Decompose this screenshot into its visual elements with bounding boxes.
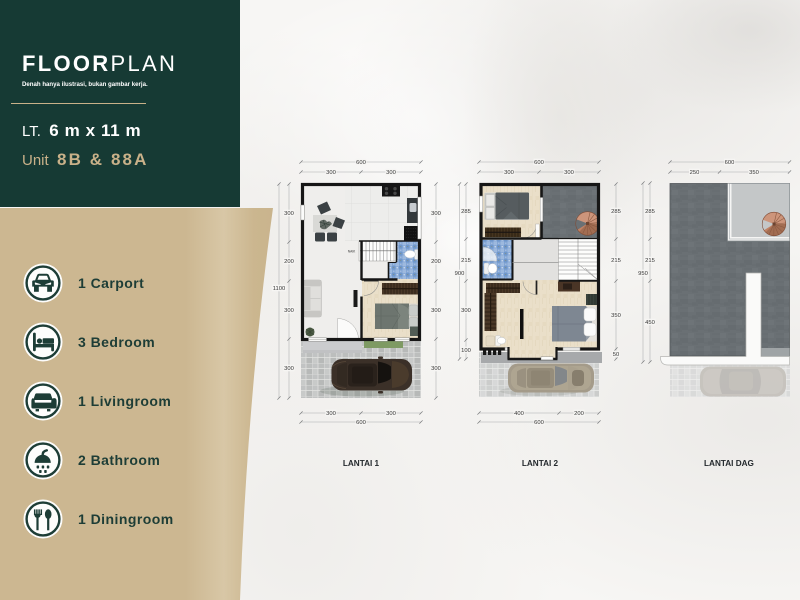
svg-text:600: 600 bbox=[356, 420, 366, 426]
svg-text:300: 300 bbox=[386, 411, 396, 417]
svg-text:600: 600 bbox=[725, 160, 735, 166]
svg-text:300: 300 bbox=[326, 170, 336, 176]
svg-text:300: 300 bbox=[284, 308, 294, 314]
svg-text:1100: 1100 bbox=[273, 286, 285, 292]
svg-text:300: 300 bbox=[284, 366, 294, 372]
svg-text:300: 300 bbox=[326, 411, 336, 417]
svg-text:300: 300 bbox=[386, 170, 396, 176]
svg-text:450: 450 bbox=[645, 320, 655, 326]
svg-text:300: 300 bbox=[431, 366, 441, 372]
svg-text:215: 215 bbox=[645, 258, 655, 264]
svg-text:250: 250 bbox=[690, 170, 700, 176]
svg-text:200: 200 bbox=[431, 259, 441, 265]
svg-text:285: 285 bbox=[461, 209, 471, 215]
svg-text:LANTAI 2: LANTAI 2 bbox=[522, 459, 559, 468]
svg-text:200: 200 bbox=[284, 259, 294, 265]
svg-text:350: 350 bbox=[749, 170, 759, 176]
svg-text:300: 300 bbox=[504, 170, 514, 176]
svg-text:LANTAI DAG: LANTAI DAG bbox=[704, 459, 754, 468]
svg-text:100: 100 bbox=[461, 348, 471, 354]
svg-text:285: 285 bbox=[645, 209, 655, 215]
svg-text:300: 300 bbox=[284, 211, 294, 217]
svg-text:NAIK: NAIK bbox=[348, 249, 356, 253]
svg-text:600: 600 bbox=[356, 160, 366, 166]
svg-text:600: 600 bbox=[534, 420, 544, 426]
svg-text:215: 215 bbox=[611, 258, 621, 264]
svg-text:900: 900 bbox=[455, 271, 465, 277]
svg-text:950: 950 bbox=[638, 271, 648, 277]
svg-text:200: 200 bbox=[574, 411, 584, 417]
svg-text:300: 300 bbox=[431, 308, 441, 314]
svg-text:300: 300 bbox=[461, 308, 471, 314]
svg-text:300: 300 bbox=[564, 170, 574, 176]
svg-text:LANTAI 1: LANTAI 1 bbox=[343, 459, 380, 468]
svg-text:600: 600 bbox=[534, 160, 544, 166]
svg-text:215: 215 bbox=[461, 258, 471, 264]
svg-text:300: 300 bbox=[431, 211, 441, 217]
svg-text:50: 50 bbox=[613, 352, 619, 358]
svg-text:285: 285 bbox=[611, 209, 621, 215]
svg-text:350: 350 bbox=[611, 313, 621, 319]
svg-text:400: 400 bbox=[514, 411, 524, 417]
